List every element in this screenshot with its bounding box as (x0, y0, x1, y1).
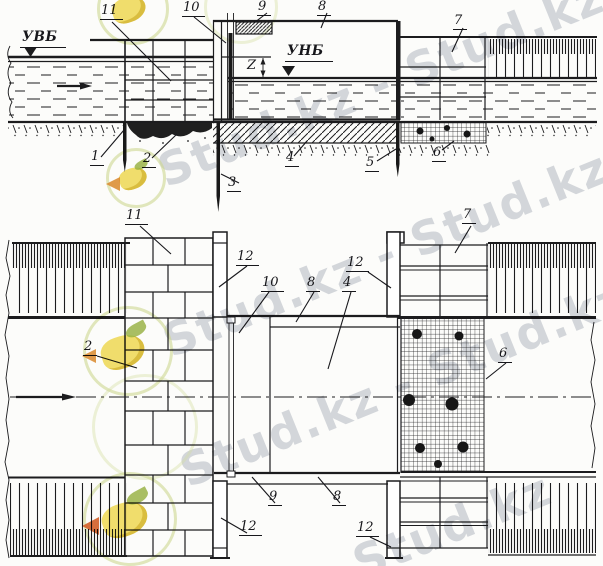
scanned-drawing-page: УВБ УНБ Z 11 10 9 8 7 1 2 3 4 5 6 11 12 … (0, 0, 603, 566)
plan-view-linework (5, 232, 596, 558)
drawing-canvas (0, 0, 603, 566)
section-view-linework (8, 13, 597, 212)
